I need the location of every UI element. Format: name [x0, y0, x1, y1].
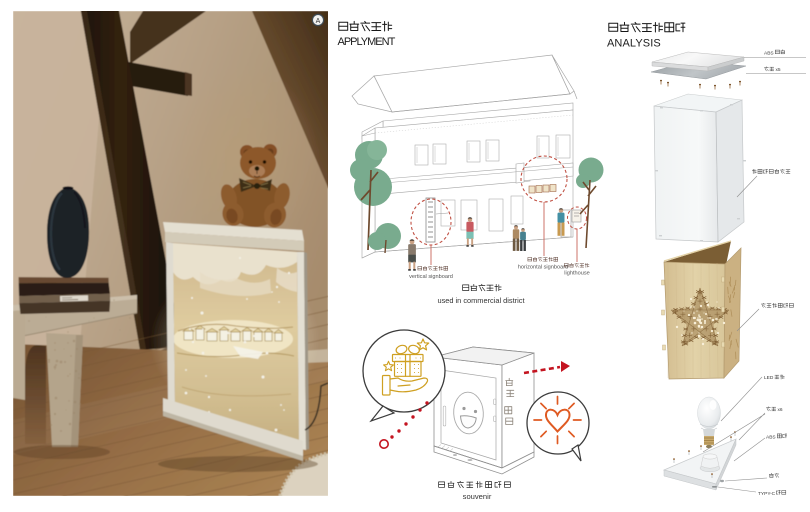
svg-text:vertical signboard: vertical signboard: [409, 274, 453, 280]
svg-text:TYPY-C: TYPY-C: [758, 491, 776, 497]
svg-text:horizontal signboard: horizontal signboard: [518, 265, 568, 271]
svg-text:ANALYSIS: ANALYSIS: [607, 38, 661, 50]
svg-text:LED: LED: [764, 375, 774, 381]
svg-text:lighthouse: lighthouse: [564, 271, 590, 277]
svg-text:used in commercial district: used in commercial district: [437, 296, 524, 305]
svg-text:x6: x6: [778, 407, 783, 413]
svg-text:ABS: ABS: [766, 435, 776, 441]
svg-text:A: A: [316, 18, 321, 25]
svg-text:ABS: ABS: [764, 51, 774, 57]
svg-text:souvenir: souvenir: [463, 492, 492, 501]
svg-text:x5: x5: [776, 67, 781, 73]
svg-text:APPLYMENT: APPLYMENT: [338, 36, 396, 48]
